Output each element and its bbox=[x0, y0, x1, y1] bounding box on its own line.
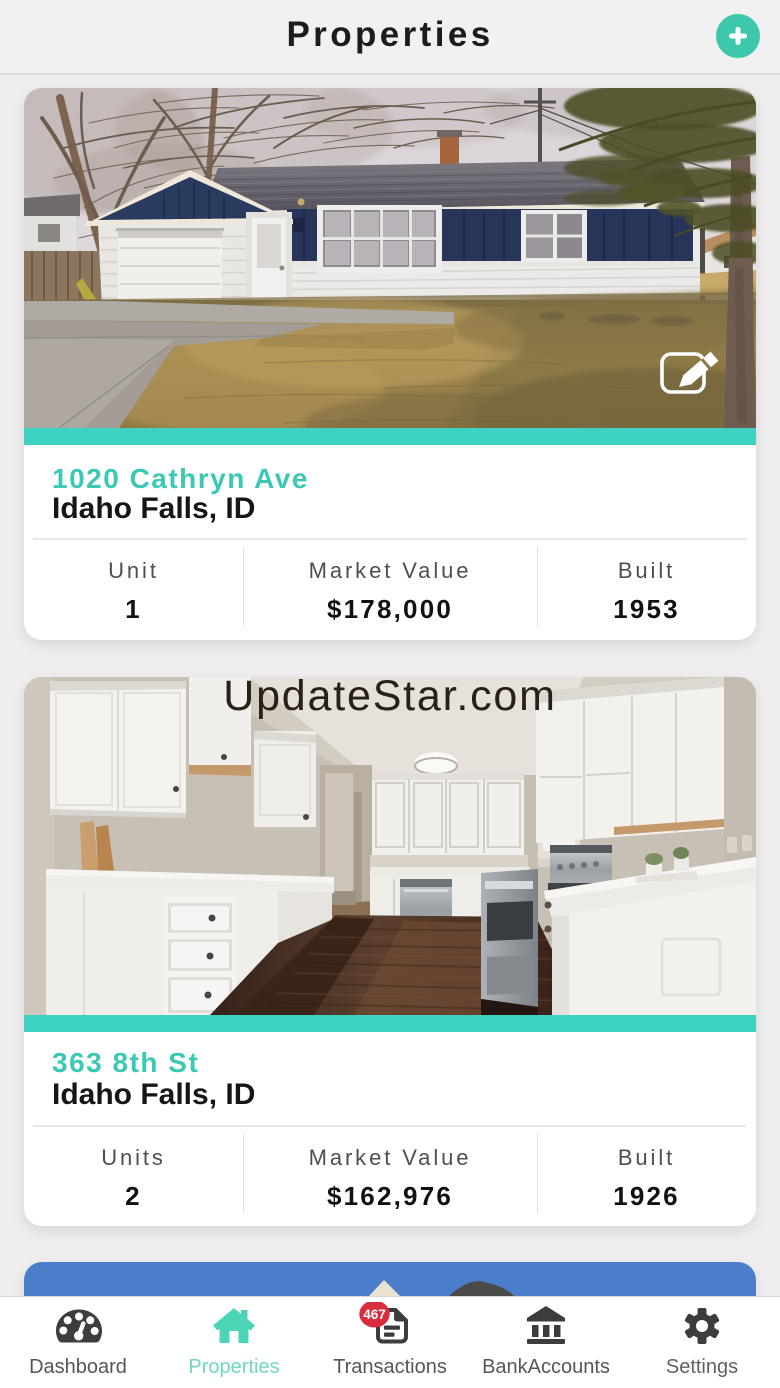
svg-text:467: 467 bbox=[363, 1307, 386, 1322]
